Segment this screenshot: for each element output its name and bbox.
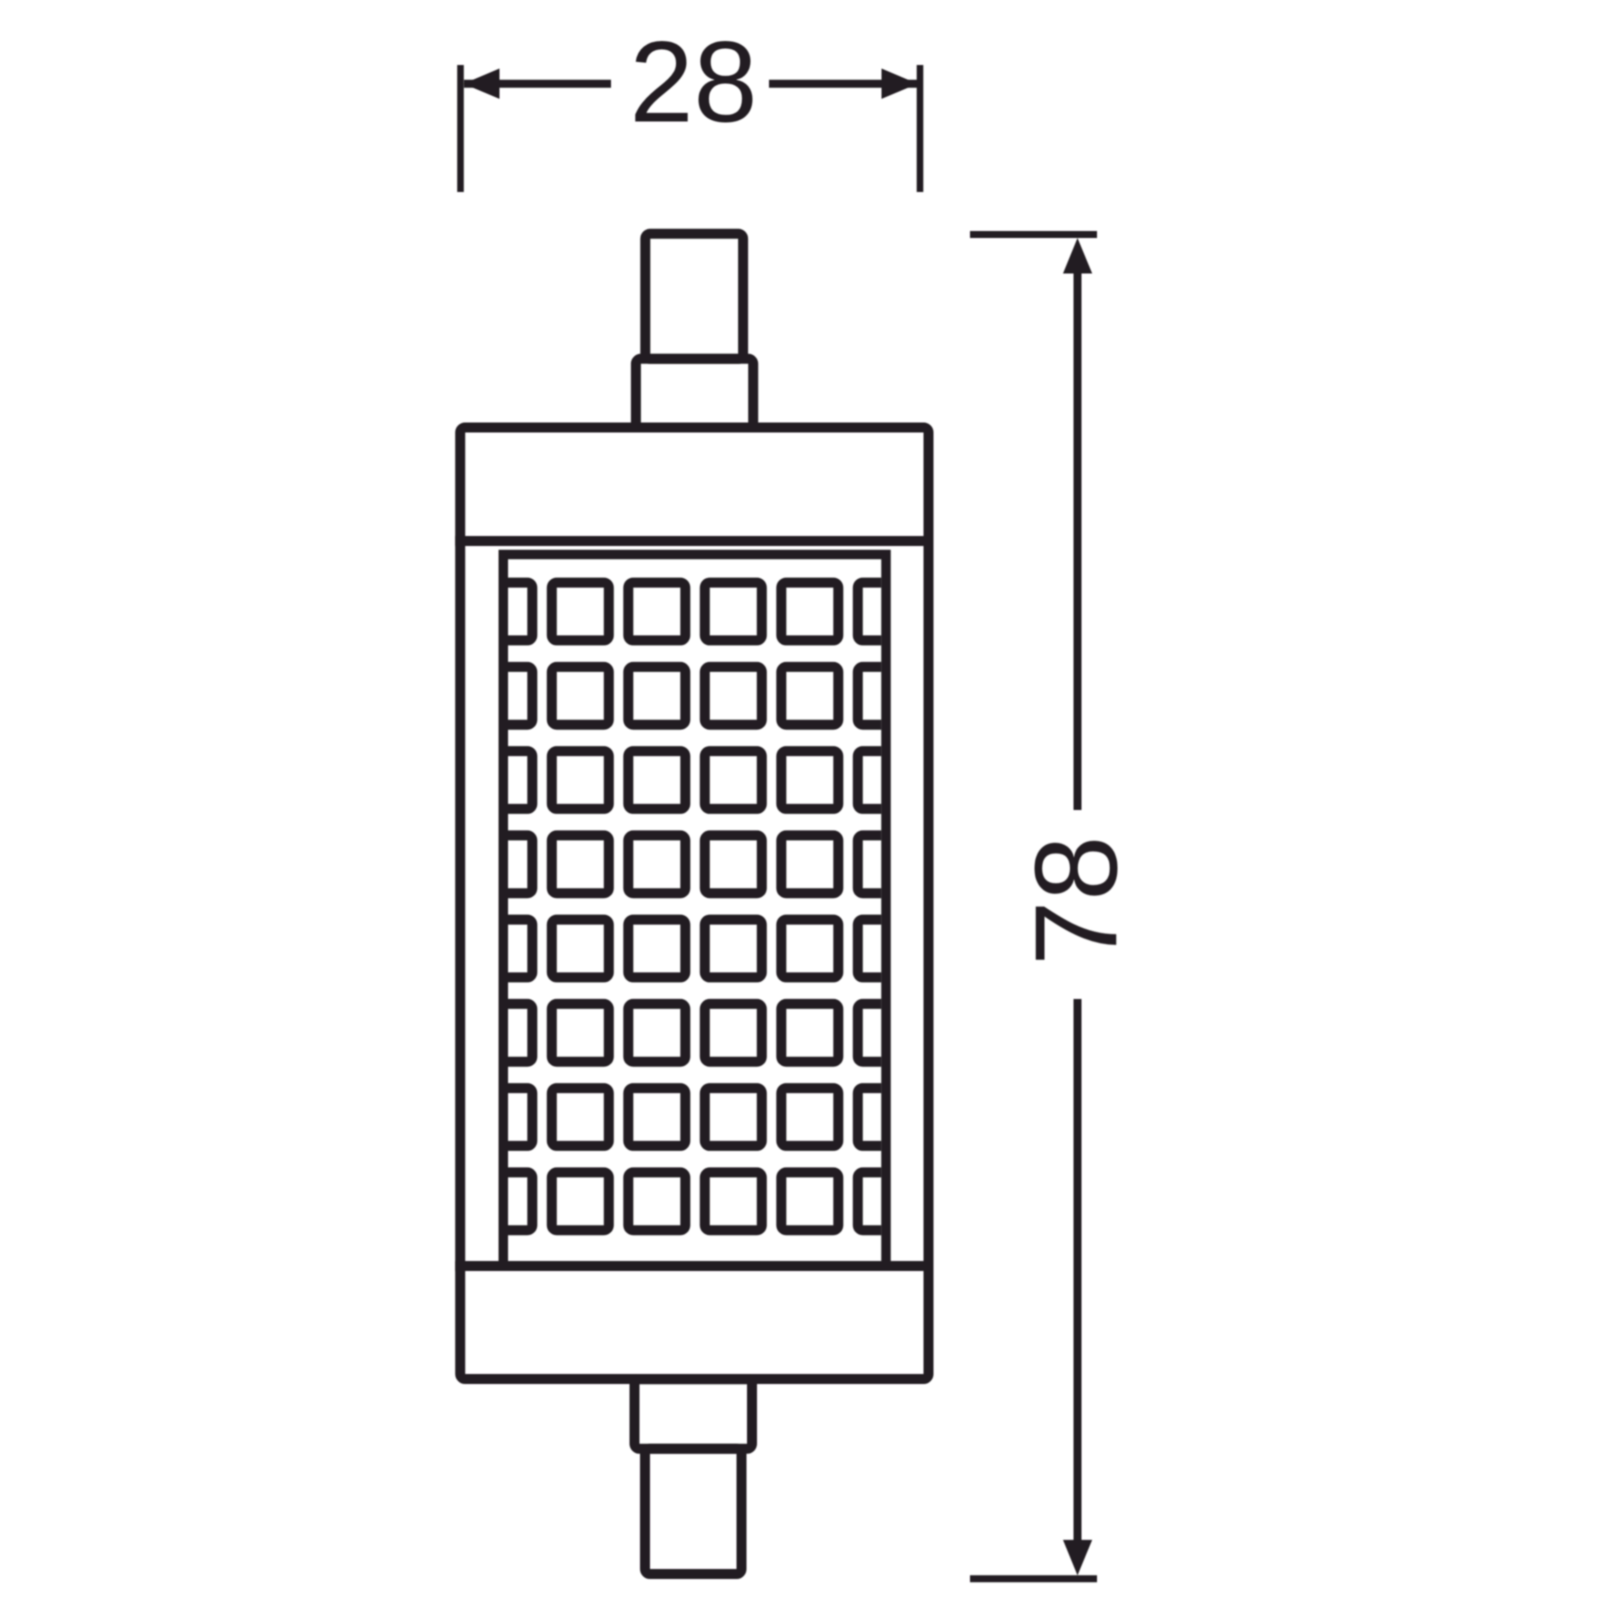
svg-text:78: 78 (1011, 836, 1142, 966)
svg-text:28: 28 (630, 18, 758, 146)
